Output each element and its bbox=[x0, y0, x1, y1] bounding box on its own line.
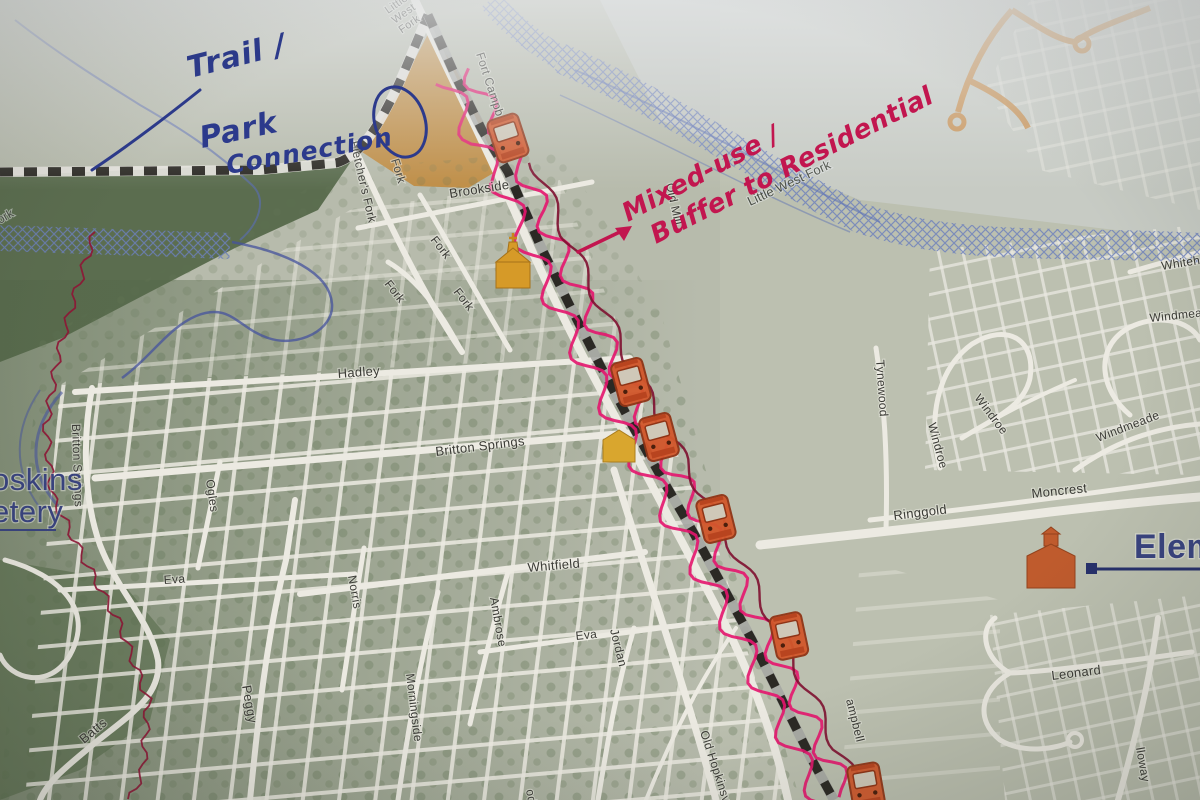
planning-map-photo: LittleWestForkFort CampbFletcher's ForkF… bbox=[0, 0, 1200, 800]
map-canvas: LittleWestForkFort CampbFletcher's ForkF… bbox=[0, 0, 1200, 800]
photo-vignette bbox=[0, 0, 1200, 800]
